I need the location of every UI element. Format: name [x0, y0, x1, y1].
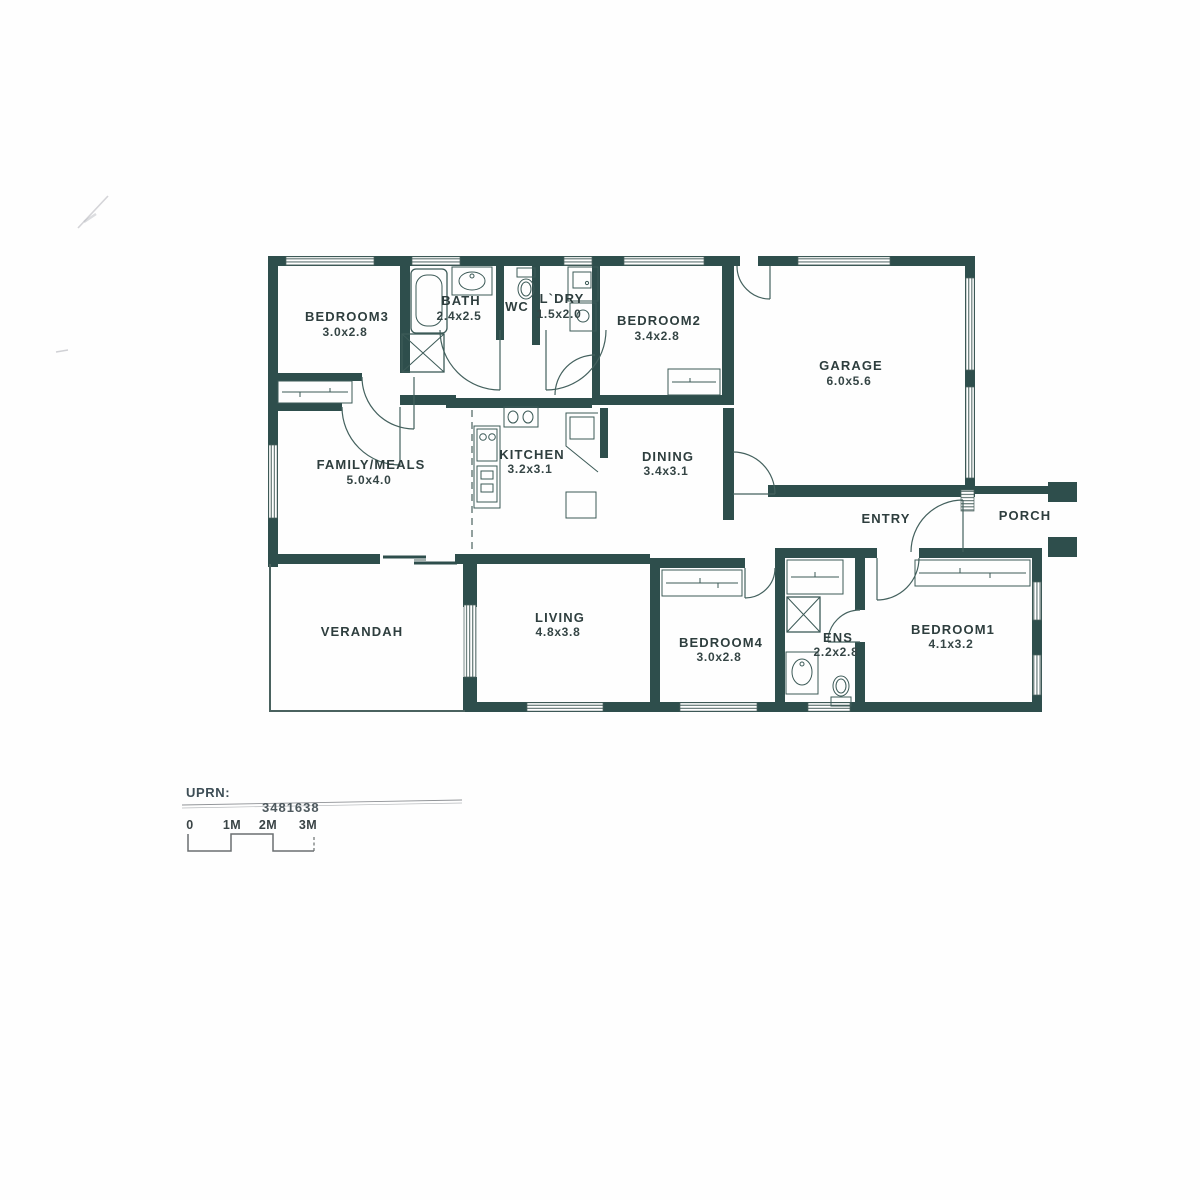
floor-plan-page: BEDROOM3 3.0x2.8 BATH 2.4x2.5 WC L`DRY 1…: [0, 0, 1200, 1200]
room-entry: ENTRY: [861, 511, 910, 526]
bedroom3-dims: 3.0x2.8: [323, 325, 368, 339]
room-porch: PORCH: [999, 508, 1051, 523]
window: [412, 257, 460, 265]
window: [624, 257, 704, 265]
bedroom1-label: BEDROOM1: [911, 622, 995, 637]
scale-tick-2m: 2M: [259, 818, 277, 832]
hall-door-left: [440, 330, 500, 390]
entry-cupboard: [787, 560, 843, 594]
scale-tick-3m: 3M: [299, 818, 317, 832]
ens-label: ENS: [823, 630, 853, 645]
fridge-space: [566, 492, 596, 518]
scale-bar-line: [188, 834, 314, 851]
entry-label: ENTRY: [861, 511, 910, 526]
living-label: LIVING: [535, 610, 585, 625]
room-kitchen: KITCHEN 3.2x3.1: [499, 447, 564, 476]
window: [527, 703, 603, 711]
bedroom4-label: BEDROOM4: [679, 635, 763, 650]
family-dims: 5.0x4.0: [347, 473, 392, 487]
family-label: FAMILY/MEALS: [317, 457, 426, 472]
kitchen-dims: 3.2x3.1: [508, 462, 553, 476]
front-door: [911, 500, 963, 552]
garage-door-panel: [966, 278, 974, 370]
garage-door-panel: [966, 387, 974, 478]
uprn-underline-2: [182, 803, 462, 808]
wc-label: WC: [505, 299, 529, 314]
room-living: LIVING 4.8x3.8: [535, 610, 585, 639]
room-bedroom3: BEDROOM3 3.0x2.8: [305, 309, 389, 339]
uprn-underline: [182, 800, 462, 805]
window: [269, 445, 277, 518]
room-dining: DINING 3.4x3.1: [642, 449, 694, 478]
verandah-sliding-door: [383, 557, 457, 563]
living-dims: 4.8x3.8: [536, 625, 581, 639]
porch-label: PORCH: [999, 508, 1051, 523]
uprn-value: 3481638: [262, 800, 320, 815]
room-ens: ENS 2.2x2.8: [814, 630, 859, 659]
kitchen-fittings: [472, 407, 598, 553]
window: [808, 703, 850, 711]
bedroom2-label: BEDROOM2: [617, 313, 701, 328]
room-ldry: L`DRY 1.5x2.0: [537, 291, 585, 321]
bath-basin-icon: [452, 267, 492, 295]
window: [798, 257, 890, 265]
kitchen-label: KITCHEN: [499, 447, 564, 462]
dining-label: DINING: [642, 449, 694, 464]
bedroom4-robe: [662, 570, 742, 596]
bench-left: [474, 426, 500, 508]
window: [1033, 582, 1041, 620]
room-bedroom2: BEDROOM2 3.4x2.8: [617, 313, 701, 343]
window: [464, 605, 476, 677]
bench-right: [566, 413, 598, 472]
scan-smudge: [78, 196, 108, 228]
bedroom3-robe: [278, 381, 352, 403]
ens-dims: 2.2x2.8: [814, 645, 859, 659]
room-garage: GARAGE 6.0x5.6: [819, 358, 883, 388]
bedroom2-robe: [668, 369, 720, 395]
uprn-label: UPRN:: [186, 785, 230, 800]
garage-dims: 6.0x5.6: [827, 374, 872, 388]
room-verandah: VERANDAH: [321, 624, 403, 639]
floor-plan-drawing: BEDROOM3 3.0x2.8 BATH 2.4x2.5 WC L`DRY 1…: [0, 0, 1200, 1200]
verandah-label: VERANDAH: [321, 624, 403, 639]
scale-bar: 0 1M 2M 3M: [186, 818, 317, 851]
bedroom1-robe: [915, 560, 1030, 586]
window: [286, 257, 374, 265]
room-bedroom1: BEDROOM1 4.1x3.2: [911, 622, 995, 651]
scan-dash: [56, 350, 68, 352]
window: [1033, 655, 1041, 695]
bedroom1-dims: 4.1x3.2: [929, 637, 974, 651]
bedroom2-door: [555, 355, 595, 395]
bedroom1-door: [877, 558, 919, 600]
bedroom2-dims: 3.4x2.8: [635, 329, 680, 343]
ldry-dims: 1.5x2.0: [537, 307, 582, 321]
window: [564, 257, 592, 265]
ens-linen-icon: [787, 597, 820, 632]
room-family: FAMILY/MEALS 5.0x4.0: [317, 457, 426, 487]
bedroom4-dims: 3.0x2.8: [697, 650, 742, 664]
scale-tick-0: 0: [186, 818, 193, 832]
room-bath: BATH 2.4x2.5: [437, 293, 482, 323]
window: [680, 703, 757, 711]
bedroom3-label: BEDROOM3: [305, 309, 389, 324]
ldry-label: L`DRY: [540, 291, 585, 306]
bath-dims: 2.4x2.5: [437, 309, 482, 323]
room-bedroom4: BEDROOM4 3.0x2.8: [679, 635, 763, 664]
bath-label: BATH: [441, 293, 481, 308]
garage-label: GARAGE: [819, 358, 883, 373]
dining-dims: 3.4x3.1: [644, 464, 689, 478]
ens-toilet-icon: [831, 676, 851, 706]
footer: UPRN: 3481638 0 1M 2M 3M: [182, 785, 462, 851]
scale-tick-1m: 1M: [223, 818, 241, 832]
garage-door-internal: [737, 266, 770, 299]
room-wc: WC: [505, 299, 529, 314]
bedroom4-door: [745, 568, 775, 598]
